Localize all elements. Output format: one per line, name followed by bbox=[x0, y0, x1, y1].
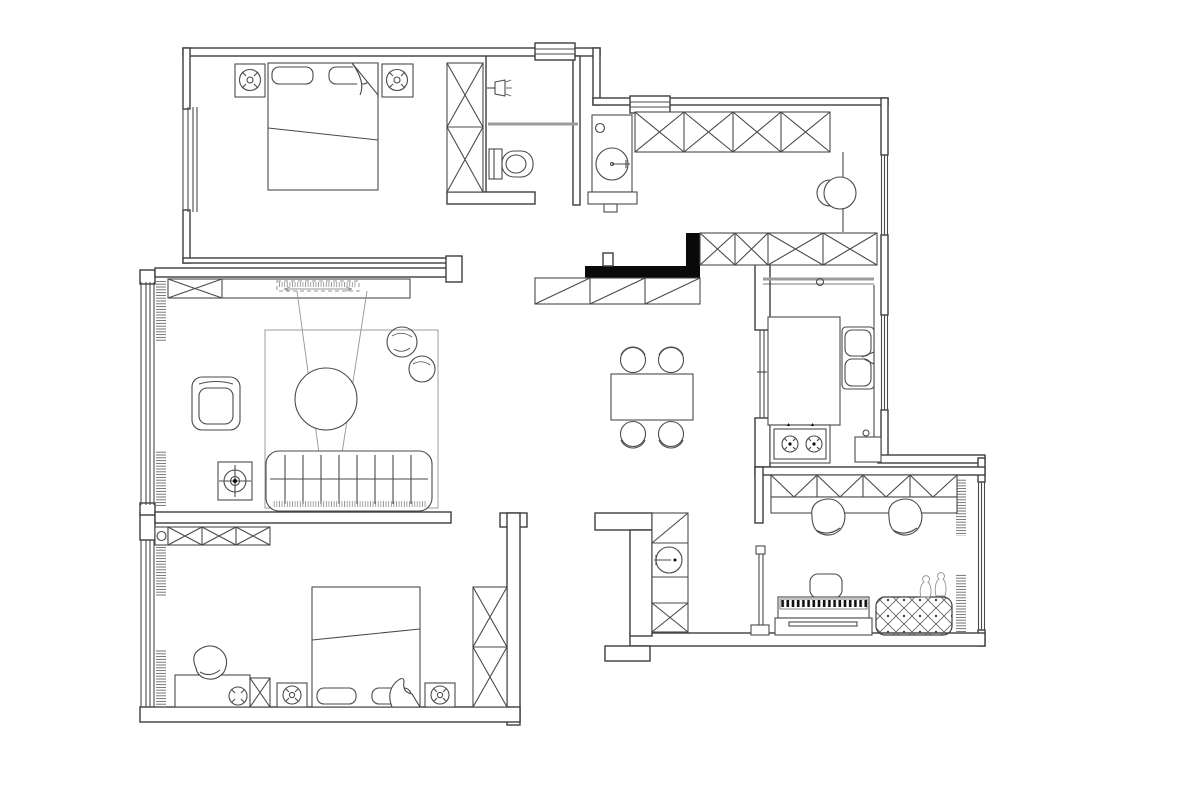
tv-wall-cabinet bbox=[168, 279, 410, 298]
wall-right-a3 bbox=[881, 410, 888, 462]
pillow bbox=[272, 67, 313, 84]
sofa-front-trim bbox=[272, 501, 426, 507]
curtain bbox=[156, 538, 166, 596]
wall-bath-right bbox=[573, 56, 580, 205]
corridor-chair bbox=[817, 177, 856, 209]
small-x-cabinet bbox=[250, 678, 270, 707]
round-coffee-table bbox=[295, 368, 357, 430]
corner-unit bbox=[855, 437, 881, 462]
wall-entry-bar bbox=[595, 513, 652, 530]
wall-living-bottom bbox=[155, 512, 451, 523]
wall-kitchen-bottom-step bbox=[878, 455, 985, 463]
wall-bed1-bottom bbox=[183, 258, 447, 263]
nightstand-lamp-left bbox=[235, 64, 265, 97]
curtain bbox=[156, 650, 166, 708]
counter-island bbox=[768, 317, 840, 425]
wall-vanity-stem bbox=[630, 530, 652, 636]
wall-bed1-left-top bbox=[183, 48, 190, 109]
solid-black-feature-wall bbox=[585, 233, 700, 283]
floor-plan-canvas bbox=[0, 0, 1200, 804]
shoe-cabinet-hatched bbox=[535, 278, 700, 304]
vent-flue-2 bbox=[630, 96, 670, 113]
window-living-room bbox=[141, 281, 166, 506]
wall-step-top bbox=[593, 48, 600, 105]
window-piano-room bbox=[956, 478, 985, 632]
small-fitting bbox=[863, 430, 869, 436]
pillow bbox=[317, 688, 356, 704]
floor-plan-drawing bbox=[0, 0, 1200, 804]
armchair bbox=[192, 377, 240, 430]
plants bbox=[387, 327, 435, 382]
kitchen-upper-cabinet-row-x bbox=[700, 233, 877, 265]
gas-stove bbox=[770, 423, 830, 463]
room-study-piano bbox=[751, 475, 957, 635]
double-sink bbox=[842, 327, 874, 389]
wall-bedroom2-left-top bbox=[140, 513, 155, 540]
desk-chair-2 bbox=[889, 499, 922, 535]
wardrobe-master bbox=[447, 63, 483, 192]
wall-bed1-left-bottom bbox=[183, 210, 190, 263]
wall-piano-left bbox=[755, 467, 763, 523]
double-bed bbox=[268, 63, 378, 190]
room-master-bedroom bbox=[235, 63, 483, 192]
curtain bbox=[956, 574, 966, 632]
wall-living-top bbox=[155, 268, 450, 277]
room-bathroom bbox=[487, 80, 533, 179]
shower-head bbox=[487, 80, 512, 96]
wall-right-a2 bbox=[881, 235, 888, 315]
upright-piano bbox=[775, 597, 872, 635]
nightstand-lamp-left bbox=[277, 683, 307, 707]
stool bbox=[810, 574, 842, 598]
grid-sofa bbox=[266, 451, 432, 511]
wardrobe-second-bedroom bbox=[473, 587, 507, 707]
wall-living-left-bottom bbox=[140, 503, 155, 515]
double-bed-2 bbox=[312, 587, 420, 707]
corridor-cabinet-row-x bbox=[635, 112, 830, 152]
wall-living-left-top bbox=[140, 270, 155, 284]
wall-piano-top bbox=[755, 467, 985, 475]
room-second-bedroom bbox=[155, 527, 507, 707]
wall-right-a1 bbox=[881, 98, 888, 155]
floor-lamp bbox=[751, 546, 769, 635]
figurines bbox=[920, 573, 946, 597]
curtain bbox=[156, 281, 166, 341]
room-dining bbox=[535, 278, 700, 448]
wall-step-block bbox=[446, 256, 462, 282]
side-table-crosshair-lamp bbox=[218, 462, 252, 500]
top-cabinet-row-x bbox=[155, 527, 270, 545]
desk-chair bbox=[194, 646, 227, 679]
utility-vanity-nook bbox=[652, 513, 688, 632]
desk bbox=[175, 675, 250, 707]
window-kitchen-2 bbox=[882, 315, 888, 410]
toilet bbox=[489, 149, 533, 179]
dining-table bbox=[611, 374, 693, 420]
window-master-bedroom bbox=[183, 107, 197, 212]
entry-step bbox=[605, 646, 650, 661]
room-living bbox=[168, 279, 438, 511]
nightstand-lamp-right bbox=[425, 683, 455, 707]
wall-switch-box bbox=[603, 253, 613, 266]
tufted-bench bbox=[876, 597, 952, 635]
window-kitchen-1 bbox=[882, 155, 888, 235]
desk-surface bbox=[771, 497, 957, 513]
wall-bath-bottom bbox=[447, 192, 535, 204]
curtain bbox=[156, 450, 166, 506]
kitchen-sliding-door bbox=[757, 330, 767, 418]
wall-bedroom2-right bbox=[507, 513, 520, 725]
vent-flue-1 bbox=[535, 43, 575, 60]
hallway bbox=[588, 112, 877, 265]
room-kitchen bbox=[763, 279, 881, 464]
nightstand-lamp-right bbox=[382, 64, 413, 97]
washbasin-cabinet bbox=[588, 115, 637, 212]
desk-chair-1 bbox=[812, 499, 845, 535]
wall-desk-hatched bbox=[771, 475, 957, 513]
wall-bedroom2-bottom bbox=[140, 707, 520, 722]
window-second-bedroom bbox=[141, 538, 166, 708]
piano-keys bbox=[780, 599, 867, 609]
